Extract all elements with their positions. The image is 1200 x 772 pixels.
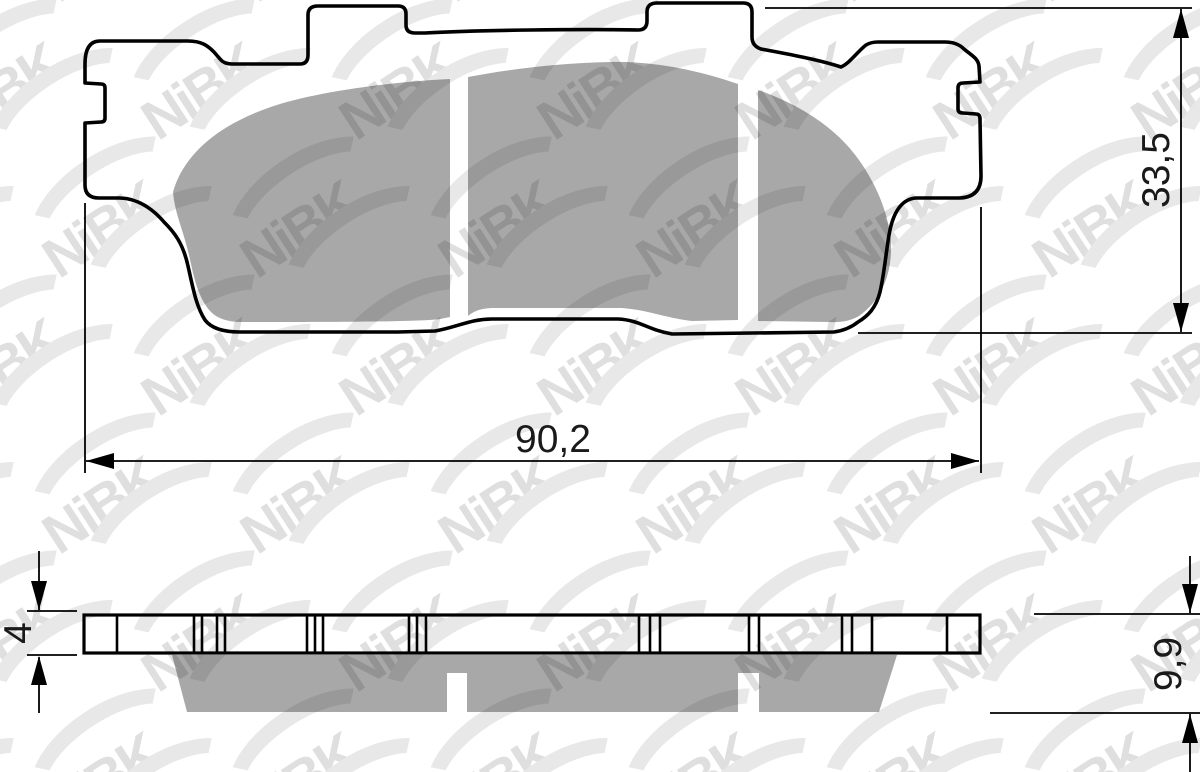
brake-pad-top-view bbox=[85, 3, 981, 334]
arrowhead-right bbox=[951, 453, 979, 469]
brake-pad-side-view bbox=[84, 615, 980, 712]
dimension-height-label: 33,5 bbox=[1135, 132, 1178, 208]
friction-pad-right-segment bbox=[758, 90, 891, 322]
arrowhead-up bbox=[1173, 9, 1189, 38]
dimension-plate-thickness-label: 4 bbox=[0, 622, 40, 644]
arrowhead-up bbox=[1182, 714, 1198, 743]
backing-plate-seam-marks bbox=[117, 616, 947, 652]
dimension-total-thickness: 9,9 bbox=[990, 556, 1200, 772]
drawing-canvas: NiBKNiBKNiBKNiBKNiBKNiBKNiBKNiBKNiBKNiBK… bbox=[0, 0, 1200, 772]
arrowhead-down bbox=[31, 581, 47, 610]
friction-pad-left-segment bbox=[173, 79, 450, 322]
arrowhead-down bbox=[1173, 303, 1189, 332]
dimension-total-thickness-label: 9,9 bbox=[1147, 637, 1190, 691]
arrowhead-left bbox=[86, 453, 114, 469]
brake-pad-technical-drawing: 90,2 33,5 4 9,9 bbox=[0, 0, 1200, 772]
friction-pad-middle-segment bbox=[468, 62, 738, 321]
arrowhead-up bbox=[31, 656, 47, 685]
dimension-plate-thickness: 4 bbox=[0, 551, 77, 713]
backing-plate-side-profile bbox=[84, 615, 980, 653]
dimension-width-label: 90,2 bbox=[515, 418, 591, 461]
friction-pad-side-profile bbox=[172, 655, 897, 712]
arrowhead-down bbox=[1182, 584, 1198, 613]
